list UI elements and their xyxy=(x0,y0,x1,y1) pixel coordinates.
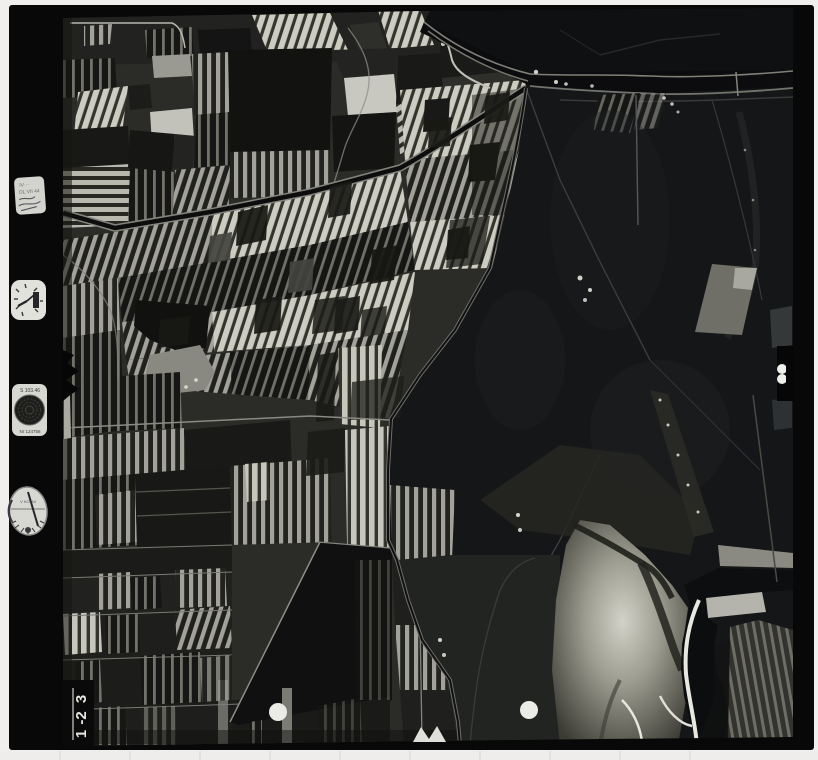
svg-text:V KOLNI: V KOLNI xyxy=(20,499,36,504)
svg-text:Nr 124756: Nr 124756 xyxy=(19,429,41,434)
svg-text:1: 1 xyxy=(73,730,90,738)
svg-text:3: 3 xyxy=(73,695,90,703)
svg-text:S 103.46: S 103.46 xyxy=(20,388,40,394)
svg-text:-2: -2 xyxy=(73,711,90,724)
svg-text:IV···: IV··· xyxy=(19,182,29,189)
